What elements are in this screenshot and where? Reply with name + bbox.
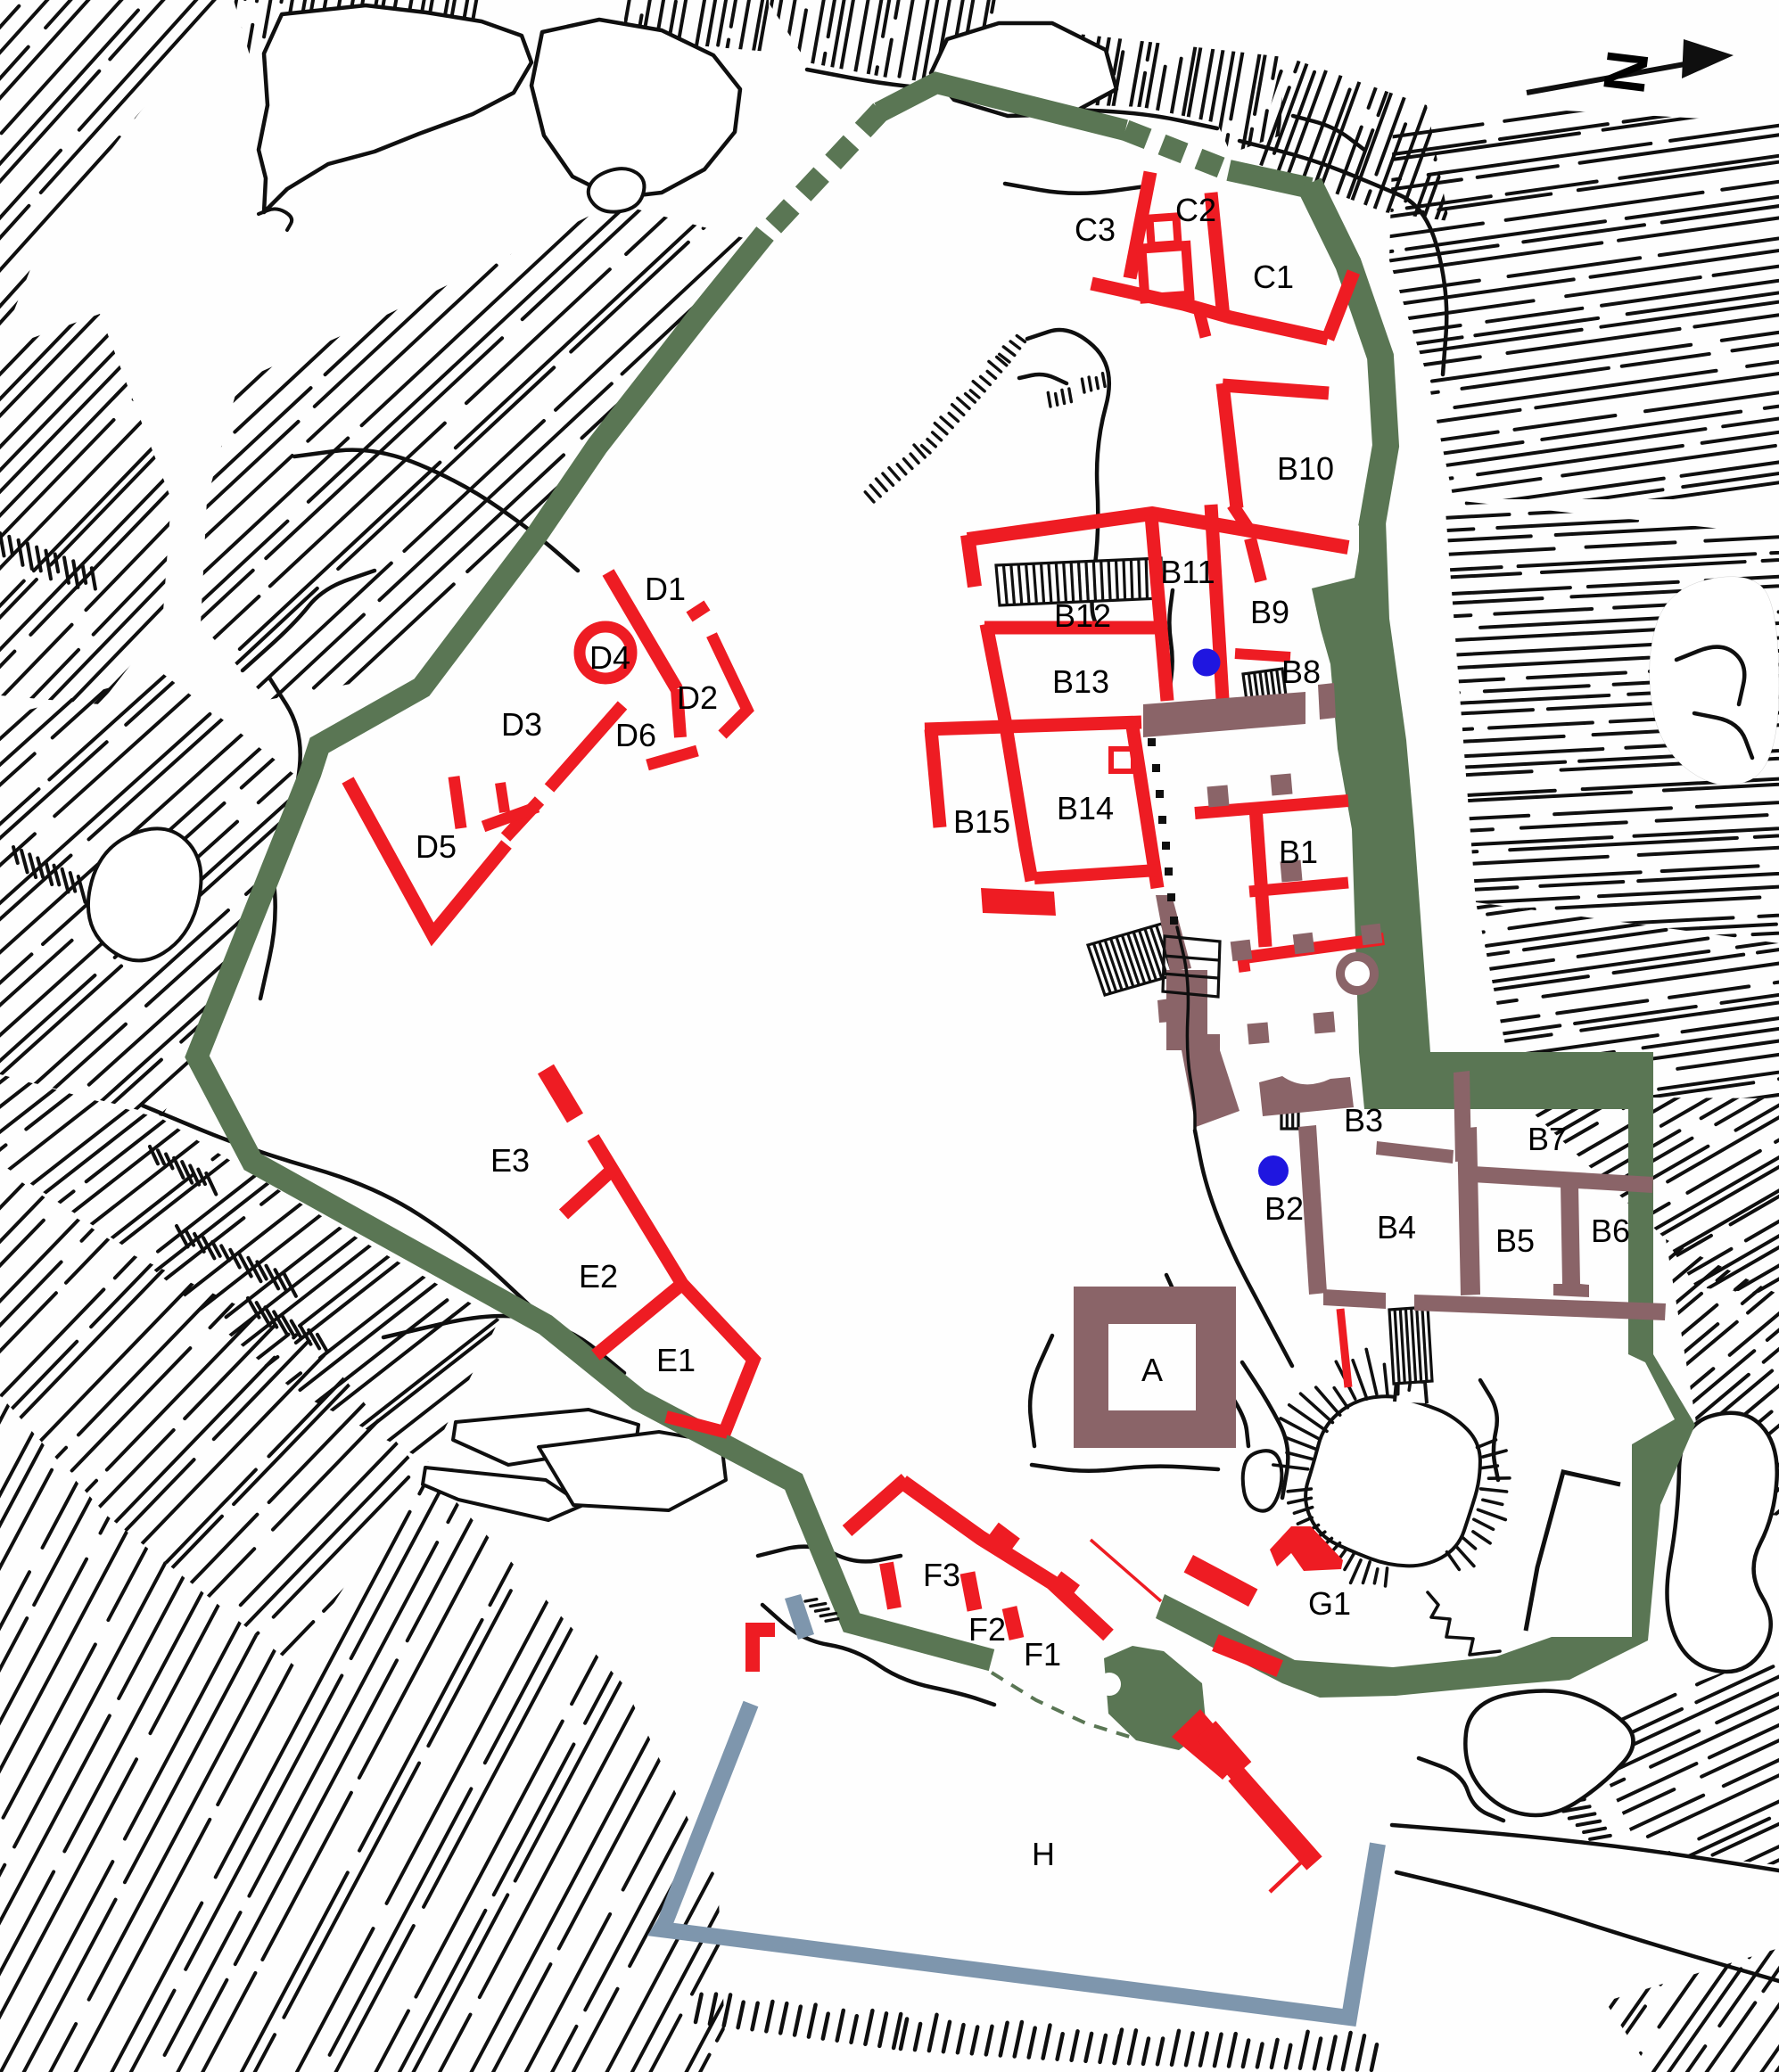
svg-text:N: N xyxy=(1591,47,1661,97)
svg-text:F2: F2 xyxy=(968,1611,1006,1648)
svg-text:D2: D2 xyxy=(677,679,718,716)
svg-text:B13: B13 xyxy=(1052,663,1109,700)
svg-text:B2: B2 xyxy=(1264,1190,1304,1227)
svg-text:D5: D5 xyxy=(416,828,457,865)
svg-text:B9: B9 xyxy=(1250,594,1289,630)
svg-text:B8: B8 xyxy=(1281,654,1321,690)
svg-text:B5: B5 xyxy=(1495,1222,1535,1259)
svg-text:B7: B7 xyxy=(1528,1121,1567,1157)
svg-text:E3: E3 xyxy=(490,1142,530,1179)
svg-text:D1: D1 xyxy=(645,571,686,607)
svg-text:A: A xyxy=(1141,1352,1163,1388)
svg-text:B3: B3 xyxy=(1344,1102,1383,1139)
svg-text:E2: E2 xyxy=(579,1258,618,1295)
svg-text:E1: E1 xyxy=(656,1342,696,1378)
svg-text:B15: B15 xyxy=(953,803,1010,840)
svg-text:D6: D6 xyxy=(615,717,656,753)
svg-text:B14: B14 xyxy=(1057,790,1114,826)
svg-text:D3: D3 xyxy=(501,706,542,743)
svg-text:C2: C2 xyxy=(1175,192,1216,228)
svg-text:C3: C3 xyxy=(1075,211,1116,248)
svg-text:B10: B10 xyxy=(1277,450,1334,487)
svg-text:D4: D4 xyxy=(589,639,630,676)
svg-text:F3: F3 xyxy=(923,1557,960,1593)
svg-text:H: H xyxy=(1032,1836,1055,1872)
svg-text:B11: B11 xyxy=(1160,554,1215,590)
svg-text:C1: C1 xyxy=(1253,259,1294,295)
svg-text:B4: B4 xyxy=(1377,1209,1416,1246)
svg-text:B1: B1 xyxy=(1279,834,1318,870)
svg-text:F1: F1 xyxy=(1024,1636,1061,1673)
svg-text:B12: B12 xyxy=(1054,597,1111,634)
svg-text:B6: B6 xyxy=(1591,1213,1630,1249)
svg-text:G1: G1 xyxy=(1308,1585,1351,1622)
